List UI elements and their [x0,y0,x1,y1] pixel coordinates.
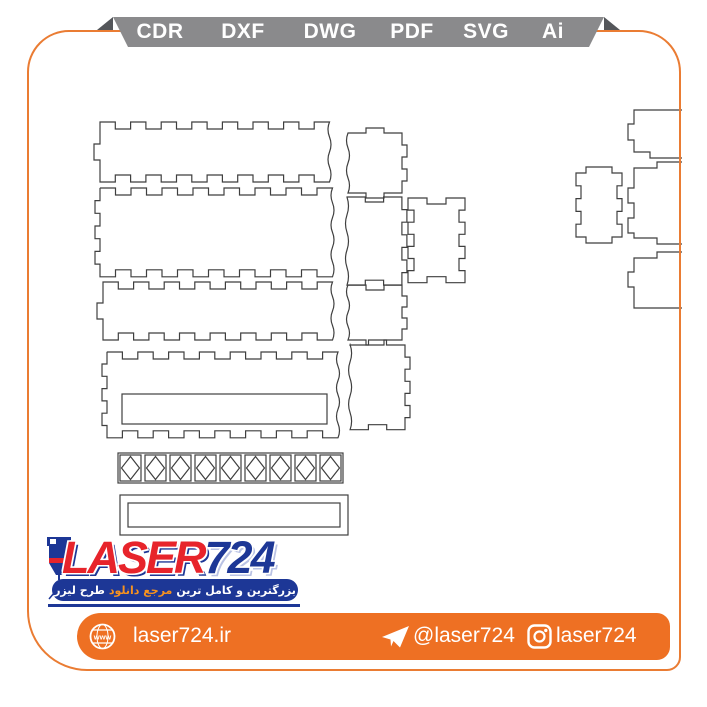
panel-small-panel-1 [347,128,408,198]
lattice-diamond [197,457,215,480]
brand-logotype-laser: LASER [62,532,205,583]
format-badge-svg[interactable]: SVG [463,20,509,44]
instagram-icon[interactable] [527,624,552,649]
footer-bar: www laser724.ir @laser724 laser724 [77,613,670,660]
panel-long-panel-1 [94,122,331,182]
lattice-diamond [297,457,315,480]
tagline-post: طرح لیزر [54,584,105,597]
clipped-panel-bottom [628,252,682,308]
lattice-cell [245,455,266,481]
panel-end-panel-notched [408,198,465,283]
format-ribbon: CDR DXF DWG PDF SVG Ai [0,0,707,60]
brand-logotype: LASER724 [62,535,274,580]
clipped-panel-middle [628,162,682,244]
lattice-cell [220,455,241,481]
panel-small-panel-2 [346,197,407,285]
panel-small-panel-3 [347,285,408,345]
lattice-diamond [122,457,140,480]
globe-www-icon: www [89,623,116,650]
ribbon-left-fold [97,17,113,30]
lattice-cell [270,455,291,481]
panel-long-panel-3 [97,282,334,340]
poster: CDR DXF DWG PDF SVG Ai LASER724 بزرگترین… [0,0,707,707]
svg-text:www: www [93,633,112,642]
tagline-pre: بزرگترین و کامل ترین [176,584,296,597]
lattice-cell [170,455,191,481]
clipped-panel-top [628,110,682,158]
lattice-cell [120,455,141,481]
ribbon-band [113,17,604,47]
telegram-handle[interactable]: @laser724 [413,624,515,648]
lattice-cell [195,455,216,481]
lattice-cell [145,455,166,481]
frame-strip-inner [128,503,340,527]
brand-logotype-724: 724 [205,532,274,583]
instagram-handle[interactable]: laser724 [556,624,637,648]
ribbon-right-fold [604,17,620,30]
lattice-cell [320,455,341,481]
tagline-highlight: مرجع دانلود [109,584,173,597]
website-link[interactable]: laser724.ir [133,624,231,648]
frame-strip-outer [120,495,348,535]
panel-right-end-panel [576,167,622,243]
format-badge-cdr[interactable]: CDR [137,20,184,44]
lattice-cell [295,455,316,481]
lattice-diamond [222,457,240,480]
format-badge-pdf[interactable]: PDF [390,20,434,44]
format-badge-ai[interactable]: Ai [542,20,564,44]
telegram-icon[interactable] [382,626,409,648]
format-badge-dwg[interactable]: DWG [304,20,357,44]
lattice-diamond [247,457,265,480]
lattice-diamond [272,457,290,480]
panel-long-panel-4-with-slot [102,352,339,438]
lattice-diamond [172,457,190,480]
lattice-diamond [147,457,165,480]
format-badge-dxf[interactable]: DXF [221,20,265,44]
panel-long-panel-4-with-slot-slot [122,394,327,424]
lattice-strip-outer [118,453,343,483]
lattice-diamond [322,457,340,480]
tagline-underline [48,604,300,607]
brand-tagline: بزرگترین و کامل ترین مرجع دانلود طرح لیز… [52,579,298,601]
panel-small-panel-4 [349,340,410,430]
panel-long-panel-2 [95,188,334,277]
